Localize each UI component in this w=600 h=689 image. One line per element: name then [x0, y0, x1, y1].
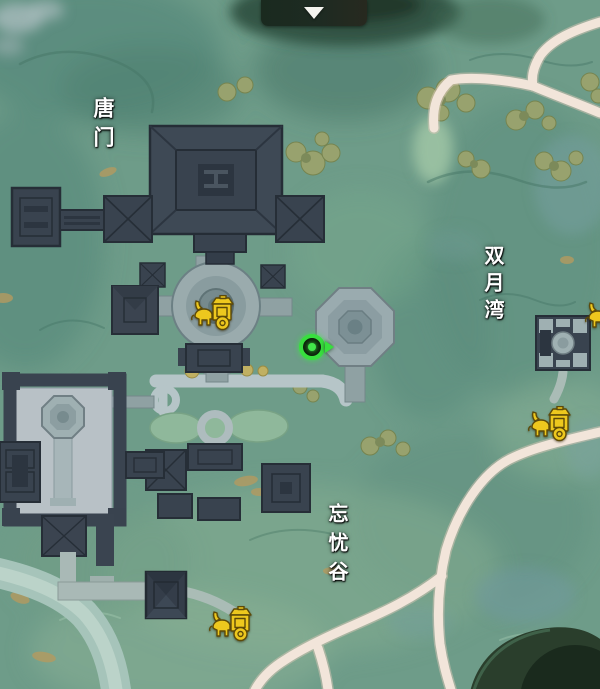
player-dot-icon [308, 343, 316, 351]
map-collapse-tab[interactable] [261, 0, 367, 26]
fast-travel-carriage-icon[interactable] [584, 297, 600, 333]
fast-travel-carriage-icon[interactable] [190, 295, 236, 331]
player-position-marker [299, 334, 325, 360]
region-label-tangmen: 唐门 [92, 97, 113, 155]
region-label-shuangyuewan: 双月湾 [483, 245, 503, 326]
player-direction-arrow-icon [325, 341, 334, 353]
collapse-arrow-icon [304, 7, 324, 19]
fast-travel-carriage-icon[interactable] [208, 606, 254, 642]
map-viewport[interactable]: 唐门 双月湾 忘忧谷 [0, 0, 600, 689]
region-label-wangyougu: 忘忧谷 [327, 503, 347, 590]
fast-travel-carriage-icon[interactable] [527, 406, 573, 442]
